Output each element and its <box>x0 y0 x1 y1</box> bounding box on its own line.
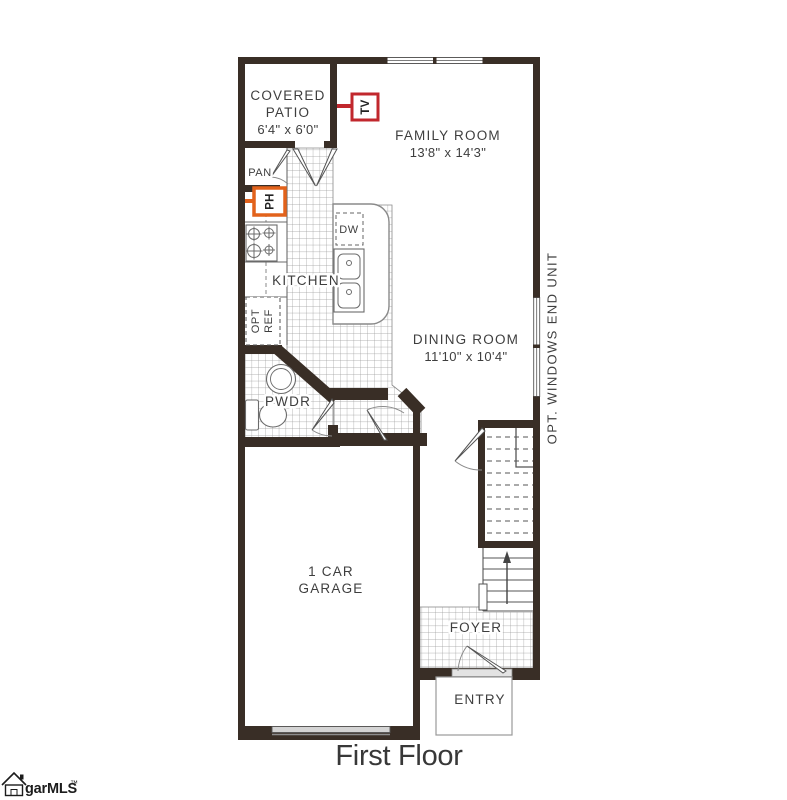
tv-marker: TV <box>337 94 378 120</box>
garage-label-line1: 1 CAR <box>308 564 354 579</box>
foyer-tile-floor <box>420 607 533 668</box>
wall-segment <box>328 388 388 400</box>
logo-trademark: ™ <box>70 779 78 788</box>
floor-plan-page: TV PH COVERED PATIO 6'4" x 6'0" FAMILY R… <box>0 0 787 800</box>
kitchen-label: KITCHEN <box>272 273 340 288</box>
covered-patio-label-line2: PATIO <box>266 105 311 120</box>
wall-segment <box>533 396 540 680</box>
mls-logo: garMLS ™ <box>2 773 78 797</box>
wall-segment <box>533 57 540 298</box>
wall-segment <box>478 420 540 428</box>
opt-windows-note: OPT. WINDOWS END UNIT <box>545 252 560 445</box>
opt-ref-label-line2: REF <box>263 309 275 333</box>
pantry-label: PAN <box>248 167 272 179</box>
wall-segment <box>238 437 340 447</box>
entry-label: ENTRY <box>454 692 506 707</box>
covered-patio-dims: 6'4" x 6'0" <box>257 122 318 137</box>
range-stove <box>246 225 278 261</box>
staircase <box>479 428 533 612</box>
wall-segment <box>238 57 245 740</box>
wall-segment <box>330 433 427 446</box>
dining-room-dims: 11'10" x 10'4" <box>424 349 507 364</box>
wall-segment <box>478 420 485 548</box>
garage-label-line2: GARAGE <box>299 581 364 596</box>
wall-segment <box>413 408 420 735</box>
end-unit-window <box>533 295 540 400</box>
wall-segment <box>238 141 295 148</box>
family-room-label: FAMILY ROOM <box>395 128 501 143</box>
opt-ref-label-line1: OPT <box>250 309 262 333</box>
tv-marker-label: TV <box>360 99 372 114</box>
stairs-rail-newel <box>479 584 487 610</box>
house-icon <box>2 773 26 796</box>
wall-segment <box>478 541 533 548</box>
floor-plan-canvas: TV PH COVERED PATIO 6'4" x 6'0" FAMILY R… <box>0 0 787 800</box>
family-room-dims: 13'8" x 14'3" <box>410 145 487 160</box>
dining-room-label: DINING ROOM <box>413 332 519 347</box>
family-room-window <box>385 57 486 64</box>
covered-patio-label-line1: COVERED <box>250 88 325 103</box>
foyer-label: FOYER <box>450 620 503 635</box>
phone-marker-label: PH <box>265 193 277 210</box>
round-basin-sink <box>267 365 296 394</box>
dishwasher-label: DW <box>339 224 359 236</box>
powder-room-label: PWDR <box>265 394 311 409</box>
phone-marker: PH <box>245 188 285 215</box>
wall-segment <box>330 57 337 148</box>
plan-title: First Floor <box>335 740 463 772</box>
